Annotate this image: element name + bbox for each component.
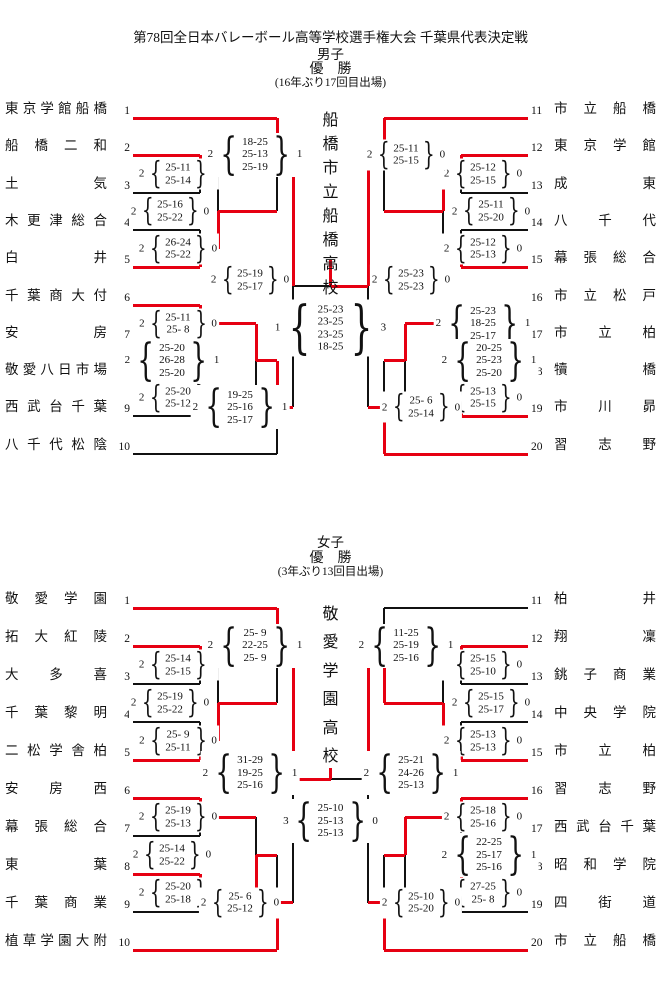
- tournament-sheet: 第78回全日本バレーボール高等学校選手権大会 千葉県代表決定戦 男子 優 勝 (…: [0, 0, 661, 999]
- champion-name-char: 市: [322, 154, 338, 178]
- team-seed: 6: [108, 784, 130, 798]
- set-scores: 25-1425-15: [165, 653, 191, 678]
- loser-sets: 0: [516, 811, 524, 824]
- set-scores: 25-1225-13: [470, 236, 496, 261]
- winner-sets: 2: [443, 242, 451, 255]
- set-scores: 27-2525- 8: [470, 881, 496, 906]
- match-score: 2{25-1225-15}0: [442, 159, 524, 190]
- set-score: 25-13: [242, 148, 268, 161]
- loser-sets: 0: [516, 391, 524, 404]
- set-score: 25-21: [398, 754, 424, 767]
- team-name: 土気: [5, 175, 107, 192]
- set-score: 18-25: [318, 341, 344, 354]
- brace-right: }: [257, 887, 269, 918]
- brace-right: }: [195, 233, 207, 264]
- champion-line: [329, 768, 332, 779]
- team-line: [133, 721, 200, 723]
- set-scores: 22-2525-1725-16: [476, 836, 502, 874]
- team-name: 千葉商業: [5, 894, 107, 911]
- team-line: [133, 266, 200, 269]
- winner-sets: 2: [138, 811, 146, 824]
- set-scores: 25-2325-23: [398, 268, 424, 293]
- team-name: 習志野: [554, 780, 656, 797]
- set-score: 25-10: [408, 890, 434, 903]
- set-score: 25-13: [470, 741, 496, 754]
- brace-left: {: [462, 688, 474, 719]
- set-score: 25-17: [227, 414, 253, 427]
- winner-sets: 2: [381, 401, 389, 414]
- brace-right: }: [500, 233, 512, 264]
- brace-left: {: [289, 300, 311, 357]
- team-name: 犢橋: [554, 361, 656, 378]
- team-name: 植草学園大附: [5, 932, 107, 949]
- team-seed: 13: [531, 670, 553, 684]
- set-scores: 25-2323-2523-2518-25: [318, 303, 344, 353]
- brace-right: }: [500, 726, 512, 757]
- team-name: 敬愛八日市場: [5, 361, 107, 378]
- connector-line: [384, 210, 443, 213]
- loser-sets: 3: [380, 322, 388, 335]
- set-scores: 25-2124-2625-13: [398, 754, 424, 792]
- team-line: [133, 873, 200, 876]
- brace-left: {: [454, 650, 466, 681]
- team-name: 幕張総合: [5, 818, 107, 835]
- brace-left: {: [376, 751, 393, 795]
- match-score: 2{25-2026-2825-20}1: [123, 339, 222, 383]
- set-score: 25-19: [242, 161, 268, 174]
- champion-name-char: 学: [322, 657, 338, 681]
- team-name: 柏井: [554, 590, 656, 607]
- brace-right: }: [508, 688, 520, 719]
- set-score: 25-20: [408, 903, 434, 916]
- match-score: 2{25-1625-22}0: [129, 196, 211, 227]
- team-seed: 9: [108, 898, 130, 912]
- team-line: [461, 911, 528, 913]
- brace-right: }: [423, 139, 435, 170]
- brace-left: {: [205, 385, 222, 429]
- set-score: 25-13: [318, 815, 344, 828]
- team-name: 昭和学院: [554, 856, 656, 873]
- loser-sets: 0: [524, 205, 532, 218]
- set-score: 25-13: [398, 779, 424, 792]
- winner-sets: 2: [451, 205, 459, 218]
- team-seed: 20: [531, 936, 553, 950]
- winner-sets: 3: [282, 815, 290, 828]
- set-score: 25-12: [165, 398, 191, 411]
- team-name: 市立松戸: [554, 287, 656, 304]
- final-score: 1{25-2323-2523-2518-25}3: [273, 300, 388, 357]
- team-line: [461, 154, 528, 157]
- team-line: [133, 229, 200, 231]
- set-score: 25-16: [470, 817, 496, 830]
- brace-left: {: [221, 265, 233, 296]
- winner-sets: 2: [130, 697, 138, 710]
- set-scores: 25-1325-13: [470, 729, 496, 754]
- set-score: 25-15: [478, 691, 504, 704]
- brace-right: }: [268, 751, 285, 795]
- loser-sets: 0: [211, 811, 219, 824]
- brace-right: }: [187, 196, 199, 227]
- brace-left: {: [295, 799, 312, 843]
- brace-left: {: [141, 688, 153, 719]
- set-score: 25-22: [157, 211, 183, 224]
- set-score: 25-16: [157, 199, 183, 212]
- brace-left: {: [377, 139, 389, 170]
- brace-left: {: [149, 802, 161, 833]
- set-score: 25-23: [470, 305, 496, 318]
- champion-name-char: 敬: [322, 600, 338, 624]
- team-line: [133, 911, 200, 913]
- brace-left: {: [137, 339, 154, 383]
- team-seed: 15: [531, 253, 553, 267]
- match-score: 2{25- 922-2525- 9}1: [206, 624, 305, 668]
- team-name: 敬愛学園: [5, 590, 107, 607]
- brace-right: }: [349, 799, 366, 843]
- set-scores: 19-2525-1625-17: [227, 389, 253, 427]
- team-line: [384, 117, 528, 120]
- team-line: [133, 154, 200, 157]
- loser-sets: 0: [203, 697, 211, 710]
- set-score: 25-16: [393, 652, 419, 665]
- brace-right: }: [424, 624, 441, 668]
- set-score: 25-13: [318, 827, 344, 840]
- brace-left: {: [149, 233, 161, 264]
- winner-sets: 2: [443, 811, 451, 824]
- set-scores: 11-2525-1925-16: [393, 627, 419, 665]
- loser-sets: 1: [281, 401, 289, 414]
- winner-sets: 2: [192, 401, 200, 414]
- team-seed: 2: [108, 632, 130, 646]
- brace-left: {: [149, 382, 161, 413]
- set-score: 25-23: [476, 354, 502, 367]
- brace-right: }: [351, 300, 373, 357]
- set-score: 25-19: [157, 691, 183, 704]
- brace-left: {: [220, 133, 237, 177]
- winner-sets: 2: [366, 148, 374, 161]
- set-score: 25-23: [398, 268, 424, 281]
- brace-left: {: [454, 233, 466, 264]
- brace-right: }: [508, 196, 520, 227]
- set-score: 25-22: [159, 855, 185, 868]
- set-score: 25-20: [165, 385, 191, 398]
- set-score: 25- 9: [165, 729, 190, 742]
- set-score: 25- 6: [408, 395, 434, 408]
- brace-right: }: [500, 159, 512, 190]
- team-name: 市立柏: [554, 742, 656, 759]
- team-name: 習志野: [554, 436, 656, 453]
- team-line: [461, 266, 528, 269]
- set-score: 31-29: [237, 754, 263, 767]
- team-name: 安房: [5, 324, 107, 341]
- set-scores: 25-1925-17: [237, 268, 263, 293]
- champion-name-char: 船: [322, 106, 338, 130]
- set-scores: 25- 625-12: [227, 890, 253, 915]
- team-name: 二松学舎柏: [5, 742, 107, 759]
- team-name: 千葉黎明: [5, 704, 107, 721]
- team-line: [133, 607, 277, 610]
- set-score: 25- 8: [165, 324, 190, 337]
- set-score: 25-23: [398, 280, 424, 293]
- brace-left: {: [149, 878, 161, 909]
- brace-left: {: [454, 833, 471, 877]
- team-seed: 11: [531, 594, 553, 608]
- set-score: 25-10: [470, 665, 496, 678]
- team-line: [133, 304, 200, 307]
- set-score: 25-18: [165, 893, 191, 906]
- set-score: 23-25: [318, 316, 344, 329]
- champion-name-char: 立: [322, 178, 338, 202]
- set-score: 19-25: [237, 767, 263, 780]
- loser-sets: 1: [530, 354, 538, 367]
- set-score: 24-26: [398, 767, 424, 780]
- team-seed: 8: [108, 860, 130, 874]
- set-score: 25- 9: [242, 627, 268, 640]
- team-seed: 10: [108, 440, 130, 454]
- loser-sets: 0: [273, 896, 281, 909]
- set-score: 25-19: [237, 268, 263, 281]
- team-name: 成東: [554, 175, 656, 192]
- team-seed: 10: [108, 936, 130, 950]
- team-line: [384, 453, 528, 456]
- set-score: 25-15: [393, 155, 419, 168]
- team-name: 銚子商業: [554, 666, 656, 683]
- winner-sets: 2: [130, 205, 138, 218]
- team-name: 拓大紅陵: [5, 628, 107, 645]
- team-seed: 15: [531, 746, 553, 760]
- team-name: 白井: [5, 249, 107, 266]
- loser-sets: 0: [205, 849, 213, 862]
- brace-left: {: [454, 802, 466, 833]
- brace-left: {: [392, 887, 404, 918]
- set-scores: 25-1325-15: [470, 385, 496, 410]
- junction-line: [404, 817, 407, 855]
- set-score: 25-15: [165, 665, 191, 678]
- winner-sets: 2: [138, 317, 146, 330]
- brace-right: }: [428, 265, 440, 296]
- set-scores: 18-2525-1325-19: [242, 136, 268, 174]
- brace-right: }: [438, 392, 450, 423]
- set-scores: 25-2025-12: [165, 385, 191, 410]
- team-seed: 13: [531, 179, 553, 193]
- brace-left: {: [392, 392, 404, 423]
- winner-sets: 2: [381, 896, 389, 909]
- team-seed: 14: [531, 216, 553, 230]
- set-score: 18-25: [470, 317, 496, 330]
- set-score: 25-19: [165, 805, 191, 818]
- loser-sets: 0: [210, 317, 218, 330]
- brace-right: }: [187, 688, 199, 719]
- set-score: 25-14: [159, 843, 185, 856]
- champion-name-char: 橋: [322, 130, 338, 154]
- team-seed: 6: [108, 291, 130, 305]
- team-line: [461, 645, 528, 648]
- winner-sets: 2: [371, 274, 379, 287]
- team-name: 東京学館: [554, 137, 656, 154]
- brace-left: {: [215, 751, 232, 795]
- champion-name-char: 高: [322, 714, 338, 738]
- team-seed: 16: [531, 784, 553, 798]
- set-score: 11-25: [393, 627, 419, 640]
- brace-left: {: [149, 650, 161, 681]
- match-score: 2{22-2525-1725-16}1: [440, 833, 539, 877]
- team-seed: 7: [108, 822, 130, 836]
- set-score: 25-12: [470, 236, 496, 249]
- set-score: 25-11: [165, 162, 191, 175]
- loser-sets: 1: [296, 148, 304, 161]
- team-line: [133, 117, 277, 120]
- brace-left: {: [454, 339, 471, 383]
- loser-sets: 0: [439, 148, 447, 161]
- set-score: 25-11: [165, 311, 190, 324]
- team-name: 東葉: [5, 856, 107, 873]
- winner-sets: 2: [210, 274, 218, 287]
- connector-line: [384, 702, 443, 705]
- loser-sets: 1: [524, 317, 532, 330]
- team-line: [133, 949, 277, 952]
- match-score: 2{25-1925-13}0: [137, 802, 219, 833]
- match-score: 2{25-1925-17}0: [209, 265, 291, 296]
- team-line: [384, 949, 528, 952]
- team-line: [461, 759, 528, 762]
- set-score: 25-14: [165, 653, 191, 666]
- final-score: 3{25-1025-1325-13}0: [281, 799, 380, 843]
- brace-right: }: [438, 887, 450, 918]
- winner-sets: 2: [138, 168, 146, 181]
- brace-left: {: [462, 196, 474, 227]
- brace-left: {: [371, 624, 388, 668]
- set-scores: 25-1025-20: [408, 890, 434, 915]
- brace-right: }: [500, 382, 512, 413]
- brace-left: {: [382, 265, 394, 296]
- champion-name-char: 愛: [322, 628, 338, 652]
- match-score: 2{25- 625-14}0: [380, 392, 462, 423]
- loser-sets: 0: [454, 896, 462, 909]
- winner-sets: 2: [441, 849, 449, 862]
- set-score: 25-17: [476, 849, 502, 862]
- set-scores: 25-1125- 8: [165, 311, 190, 336]
- set-score: 25-13: [470, 385, 496, 398]
- match-score: 2{20-2525-2325-20}1: [440, 339, 539, 383]
- winner-sets: 2: [443, 735, 451, 748]
- match-score: 2{25-1125-15}0: [365, 139, 447, 170]
- set-score: 25-19: [393, 639, 419, 652]
- set-scores: 25-1125-14: [165, 162, 191, 187]
- team-seed: 5: [108, 253, 130, 267]
- team-name: 市立船橋: [554, 932, 656, 949]
- loser-sets: 0: [454, 401, 462, 414]
- match-score: 2{19-2525-1625-17}1: [191, 385, 290, 429]
- set-scores: 25-1425-22: [159, 843, 185, 868]
- team-seed: 3: [108, 670, 130, 684]
- brace-left: {: [150, 726, 162, 757]
- match-score: 2{25-1425-22}0: [131, 840, 213, 871]
- team-seed: 19: [531, 898, 553, 912]
- team-name: 八千代: [554, 212, 656, 229]
- set-scores: 25-2025-18: [165, 881, 191, 906]
- winner-sets: 2: [363, 767, 371, 780]
- team-line: [461, 415, 528, 418]
- loser-sets: 1: [296, 639, 304, 652]
- team-line: [133, 759, 200, 762]
- loser-sets: 1: [530, 849, 538, 862]
- set-score: 26-28: [159, 354, 185, 367]
- champion-name-char: 園: [322, 685, 338, 709]
- brace-right: }: [190, 339, 207, 383]
- team-line: [133, 453, 277, 455]
- loser-sets: 0: [211, 242, 219, 255]
- set-score: 25-10: [318, 802, 344, 815]
- set-scores: 25-1925-22: [157, 691, 183, 716]
- brace-left: {: [149, 159, 161, 190]
- loser-sets: 0: [516, 168, 524, 181]
- set-score: 25-16: [237, 779, 263, 792]
- set-scores: 25-1525-17: [478, 691, 504, 716]
- loser-sets: 0: [371, 815, 379, 828]
- connector-line: [384, 854, 405, 857]
- team-name: 翔凜: [554, 628, 656, 645]
- set-score: 25-11: [478, 199, 504, 212]
- team-name: 市立柏: [554, 324, 656, 341]
- brace-right: }: [189, 840, 201, 871]
- set-score: 25-16: [227, 401, 253, 414]
- winner-sets: 2: [124, 354, 132, 367]
- men-note: (16年ぶり17回目出場): [0, 74, 661, 90]
- team-seed: 5: [108, 746, 130, 760]
- set-score: 25-23: [318, 303, 344, 316]
- set-scores: 25-1125-15: [393, 142, 419, 167]
- team-seed: 4: [108, 216, 130, 230]
- team-name: 木更津総合: [5, 212, 107, 229]
- set-score: 25-20: [165, 881, 191, 894]
- brace-left: {: [143, 840, 155, 871]
- set-score: 25- 8: [470, 893, 496, 906]
- match-score: 2{25-1025-20}0: [380, 887, 462, 918]
- winner-sets: 2: [207, 148, 215, 161]
- set-scores: 25-1225-15: [470, 162, 496, 187]
- set-score: 23-25: [318, 328, 344, 341]
- match-score: 2{25-1825-16}0: [442, 802, 524, 833]
- team-name: 西武台千葉: [554, 818, 656, 835]
- set-score: 25-17: [478, 703, 504, 716]
- set-scores: 25-2026-2825-20: [159, 342, 185, 380]
- junction-line: [404, 324, 407, 361]
- loser-sets: 0: [516, 887, 524, 900]
- winner-sets: 2: [138, 887, 146, 900]
- brace-right: }: [500, 878, 512, 909]
- set-score: 25-14: [165, 174, 191, 187]
- team-seed: 11: [531, 104, 553, 118]
- set-score: 25-15: [470, 174, 496, 187]
- set-scores: 25-1825-16: [470, 805, 496, 830]
- brace-left: {: [454, 159, 466, 190]
- winner-sets: 2: [451, 697, 459, 710]
- brace-left: {: [211, 887, 223, 918]
- match-score: 2{26-2425-22}0: [137, 233, 219, 264]
- set-score: 25- 6: [227, 890, 253, 903]
- team-seed: 1: [108, 104, 130, 118]
- set-score: 25-17: [237, 280, 263, 293]
- match-score: 2{31-2919-2525-16}1: [201, 751, 300, 795]
- team-name: 四街道: [554, 894, 656, 911]
- winner-sets: 2: [441, 354, 449, 367]
- loser-sets: 1: [447, 639, 455, 652]
- match-score: 2{25-1525-17}0: [450, 688, 532, 719]
- set-score: 18-25: [242, 136, 268, 149]
- brace-right: }: [273, 133, 290, 177]
- set-score: 26-24: [165, 236, 191, 249]
- match-score: 2{25-1125-20}0: [450, 196, 532, 227]
- team-name: 千葉商大付: [5, 287, 107, 304]
